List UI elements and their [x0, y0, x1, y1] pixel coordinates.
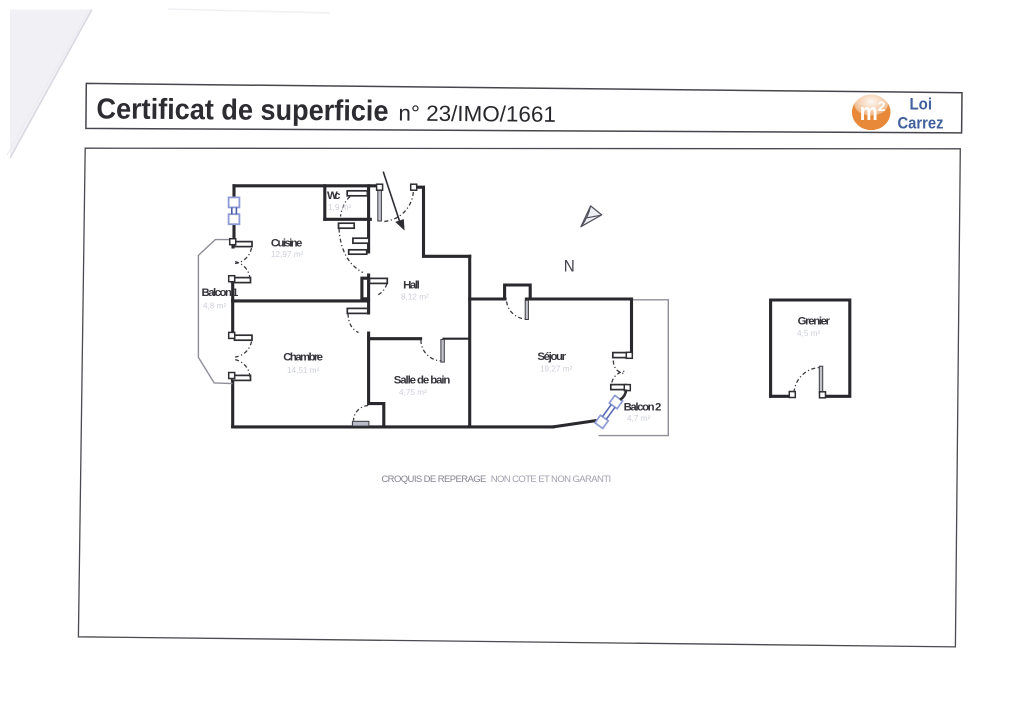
svg-text:Cuisine: Cuisine — [271, 237, 302, 249]
svg-text:N: N — [564, 257, 575, 276]
svg-text:1,9 m²: 1,9 m² — [328, 203, 351, 212]
svg-text:Hall: Hall — [403, 279, 420, 291]
svg-text:n° 23/IMO/1661: n° 23/IMO/1661 — [398, 101, 556, 127]
svg-text:Séjour: Séjour — [537, 351, 566, 363]
svg-text:Salle de bain: Salle de bain — [394, 375, 451, 387]
svg-text:Balcon 1: Balcon 1 — [202, 287, 240, 299]
svg-text:Carrez: Carrez — [898, 114, 944, 132]
svg-text:Balcon 2: Balcon 2 — [624, 402, 662, 414]
svg-text:Grenier: Grenier — [798, 316, 831, 328]
svg-text:Loi: Loi — [910, 95, 933, 113]
svg-text:CROQUIS DE REPERAGE: CROQUIS DE REPERAGE — [381, 474, 486, 485]
svg-text:4,75 m²: 4,75 m² — [399, 388, 427, 397]
svg-text:4,5 m²: 4,5 m² — [797, 329, 820, 338]
svg-text:2: 2 — [878, 98, 886, 114]
svg-text:NON COTE ET NON GARANTI: NON COTE ET NON GARANTI — [491, 474, 612, 485]
svg-text:4,7 m²: 4,7 m² — [627, 414, 650, 423]
svg-text:19,27 m²: 19,27 m² — [540, 364, 573, 373]
svg-text:4,8 m²: 4,8 m² — [203, 301, 226, 310]
svg-text:Certificat de superficie: Certificat de superficie — [96, 93, 388, 127]
svg-text:Chambre: Chambre — [283, 352, 323, 364]
svg-text:m: m — [860, 99, 878, 126]
svg-text:8,12 m²: 8,12 m² — [401, 293, 429, 302]
svg-text:Wc: Wc — [327, 190, 341, 202]
svg-text:14,51 m²: 14,51 m² — [287, 366, 320, 375]
svg-text:12,97 m²: 12,97 m² — [271, 250, 304, 259]
